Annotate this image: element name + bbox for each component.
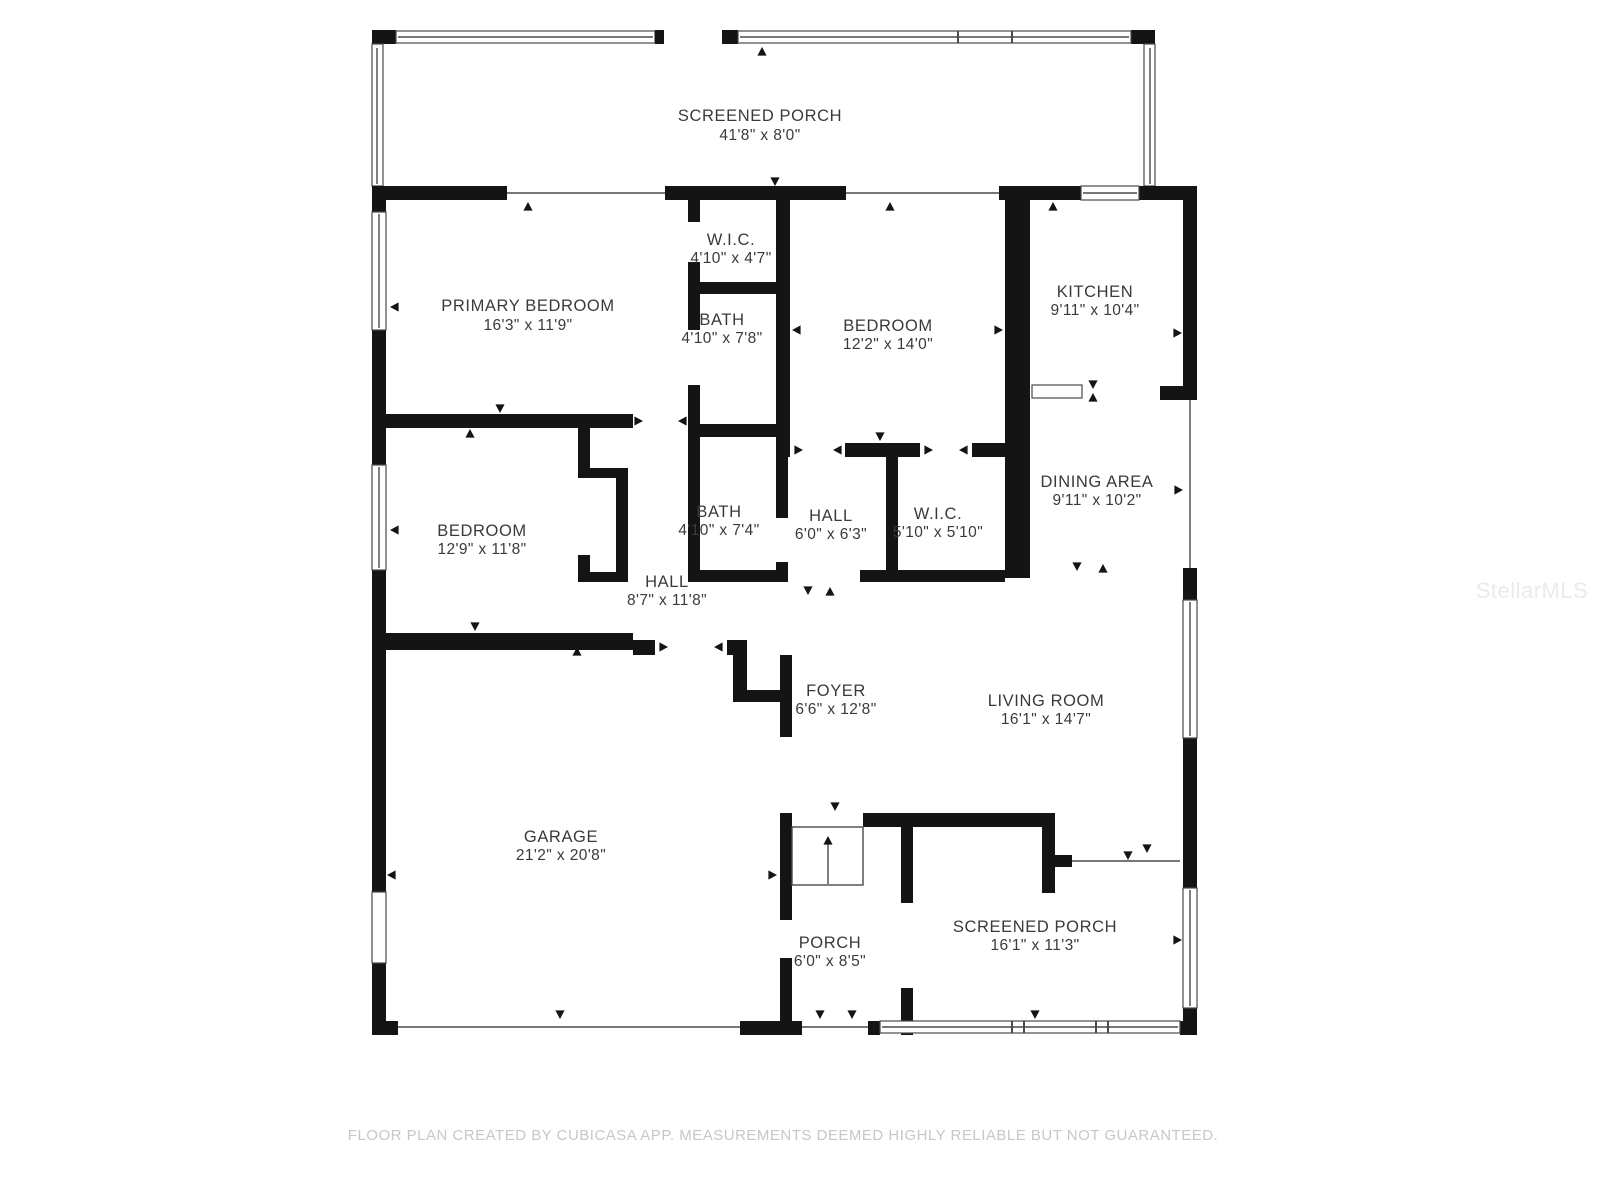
room-label-porch-name: PORCH [799,934,862,952]
room-label-hall-large-dims: 8'7" x 11'8" [627,592,707,609]
stellar-mls-watermark: StellarMLS [1476,578,1589,603]
room-label-bedroom-left-dims: 12'9" x 11'8" [437,541,526,558]
room-label-foyer-dims: 6'6" x 12'8" [795,701,876,718]
room-label-wic-top-dims: 4'10" x 4'7" [690,250,771,267]
room-label-kitchen-dims: 9'11" x 10'4" [1050,302,1139,319]
floor-plan-page: SCREENED PORCH 41'8" x 8'0" PRIMARY BEDR… [0,0,1600,1200]
room-label-living-room-dims: 16'1" x 14'7" [1001,711,1091,728]
room-label-bedroom-left-name: BEDROOM [437,522,526,540]
room-label-primary-bedroom-dims: 16'3" x 11'9" [483,317,572,334]
room-label-primary-bedroom-name: PRIMARY BEDROOM [441,297,614,315]
room-label-bath-top-name: BATH [699,311,744,329]
room-label-screened-porch-top-name: SCREENED PORCH [678,107,842,125]
room-label-garage-name: GARAGE [524,828,598,846]
room-label-porch-dims: 6'0" x 8'5" [794,953,866,970]
room-label-garage-dims: 21'2" x 20'8" [516,847,606,864]
room-label-hall-small-dims: 6'0" x 6'3" [795,526,867,543]
room-label-screened-porch-bottom-name: SCREENED PORCH [953,918,1117,936]
room-label-screened-porch-top-dims: 41'8" x 8'0" [719,127,800,144]
floor-plan-svg: SCREENED PORCH 41'8" x 8'0" PRIMARY BEDR… [0,0,1600,1200]
room-label-dining-area-name: DINING AREA [1041,473,1154,491]
room-label-dining-area-dims: 9'11" x 10'2" [1052,492,1141,509]
room-label-bedroom-right-dims: 12'2" x 14'0" [843,336,933,353]
room-label-foyer-name: FOYER [806,682,866,700]
room-label-wic-mid-name: W.I.C. [914,505,963,523]
footer-disclaimer: FLOOR PLAN CREATED BY CUBICASA APP. MEAS… [348,1127,1218,1144]
room-label-wic-top-name: W.I.C. [707,231,756,249]
kitchen-counter [1032,385,1082,398]
room-label-living-room-name: LIVING ROOM [988,692,1105,710]
room-label-hall-small-name: HALL [809,507,853,525]
room-label-screened-porch-bottom-dims: 16'1" x 11'3" [990,937,1079,954]
room-label-bath-mid-dims: 4'10" x 7'4" [678,522,759,539]
room-label-bedroom-right-name: BEDROOM [843,317,932,335]
room-label-hall-large-name: HALL [645,573,689,591]
room-label-wic-mid-dims: 5'10" x 5'10" [893,524,983,541]
room-label-bath-mid-name: BATH [696,503,741,521]
room-label-kitchen-name: KITCHEN [1057,283,1134,301]
room-label-bath-top-dims: 4'10" x 7'8" [681,330,762,347]
